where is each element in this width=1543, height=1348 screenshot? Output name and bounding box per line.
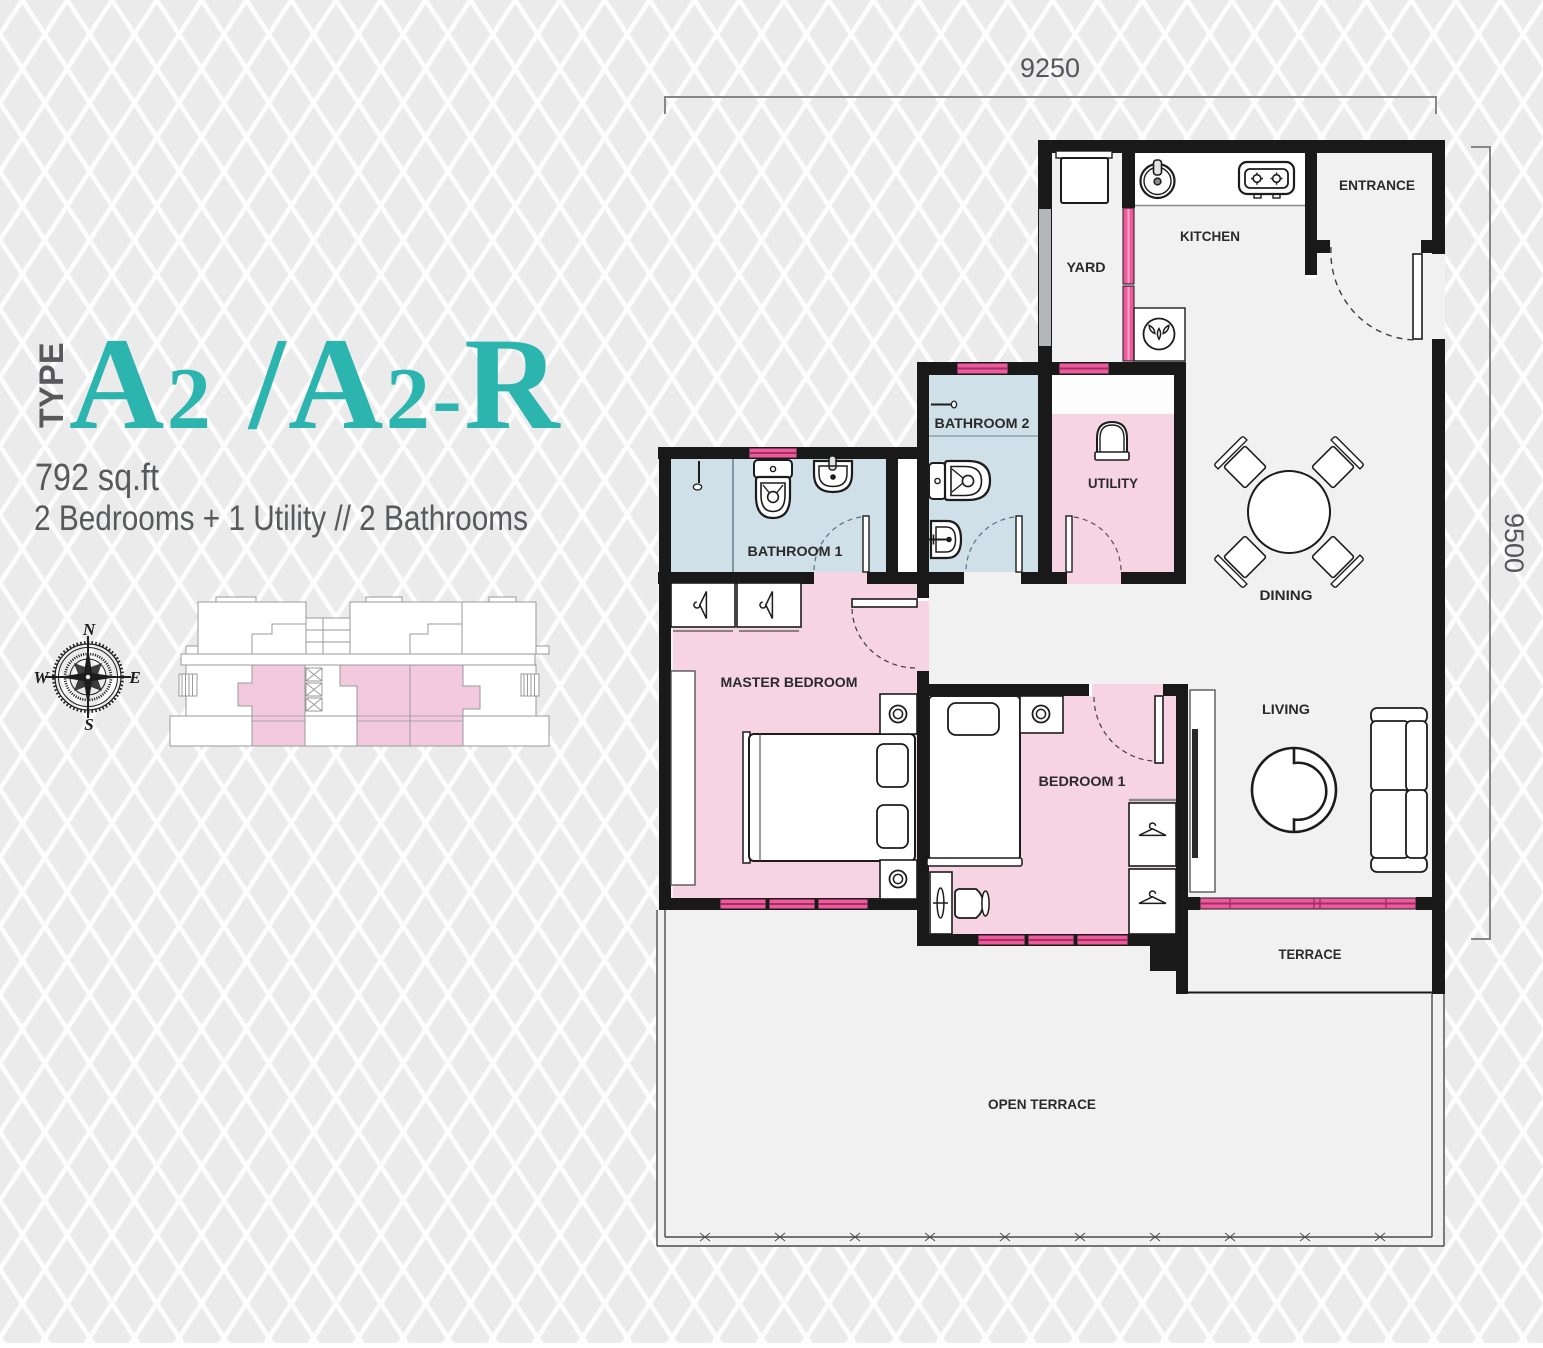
svg-text:KITCHEN: KITCHEN: [1180, 228, 1240, 244]
svg-text:9250: 9250: [1020, 53, 1080, 83]
svg-text:UTILITY: UTILITY: [1088, 475, 1139, 491]
svg-text:TERRACE: TERRACE: [1279, 946, 1342, 962]
svg-text:S: S: [84, 715, 93, 734]
svg-text:DINING: DINING: [1260, 587, 1313, 603]
svg-text:BATHROOM 2: BATHROOM 2: [935, 415, 1030, 431]
svg-text:MASTER BEDROOM: MASTER BEDROOM: [721, 674, 858, 690]
svg-text:BEDROOM 1: BEDROOM 1: [1039, 773, 1126, 789]
svg-text:YARD: YARD: [1067, 259, 1106, 275]
svg-text:TYPE: TYPE: [33, 342, 71, 428]
svg-text:ENTRANCE: ENTRANCE: [1339, 177, 1415, 193]
svg-text:LIVING: LIVING: [1262, 701, 1310, 717]
svg-text:A2 /A2-R: A2 /A2-R: [69, 310, 562, 457]
svg-text:W: W: [33, 668, 50, 687]
svg-text:792 sq.ft: 792 sq.ft: [35, 457, 159, 499]
svg-text:BATHROOM 1: BATHROOM 1: [748, 543, 843, 559]
svg-text:OPEN TERRACE: OPEN TERRACE: [988, 1096, 1096, 1112]
svg-text:9500: 9500: [1499, 513, 1529, 573]
svg-text:2 Bedrooms + 1 Utility // 2 Ba: 2 Bedrooms + 1 Utility // 2 Bathrooms: [34, 499, 528, 538]
svg-text:E: E: [128, 668, 140, 687]
svg-text:N: N: [82, 620, 96, 639]
